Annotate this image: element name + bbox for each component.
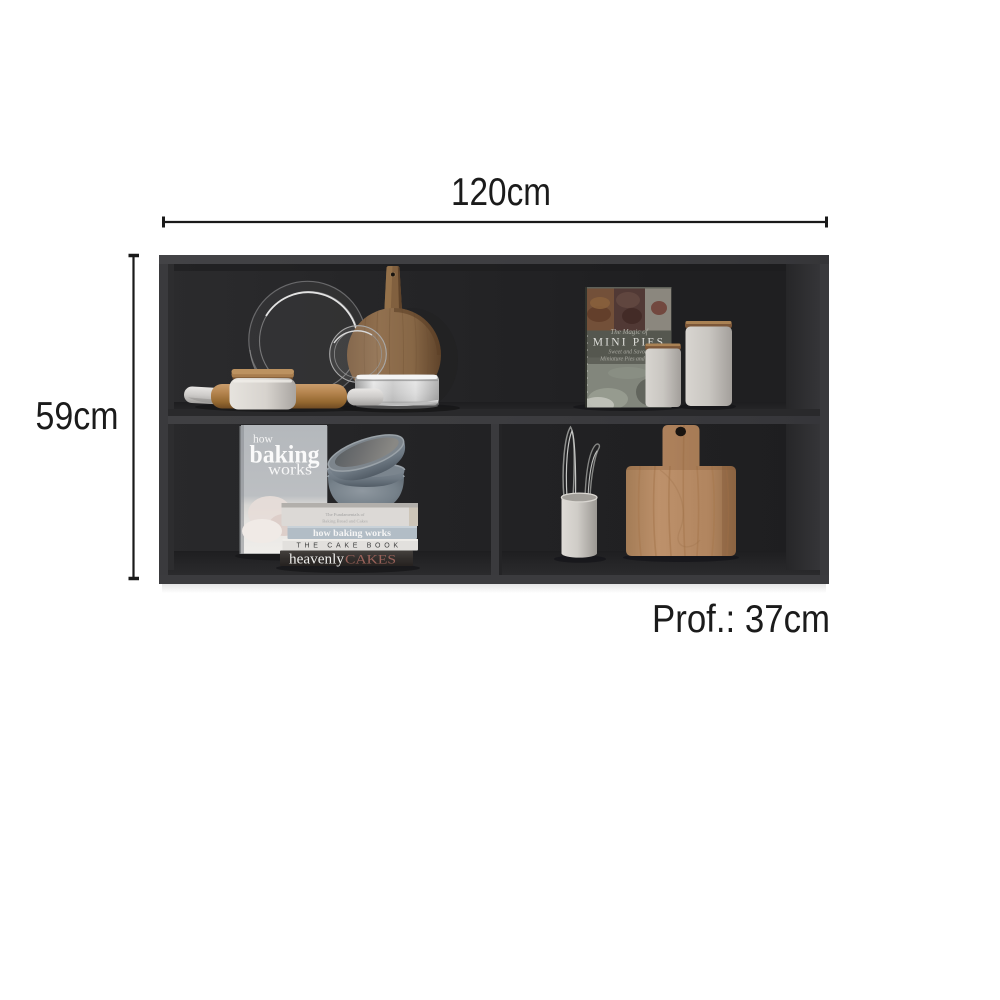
svg-text:THE CAKE BOOK: THE CAKE BOOK — [297, 543, 404, 550]
svg-text:works: works — [268, 462, 312, 479]
svg-text:Baking Bread and Cakes: Baking Bread and Cakes — [322, 519, 368, 524]
svg-text:The Fundamentals of: The Fundamentals of — [325, 512, 365, 517]
svg-text:Prof.: 37cm: Prof.: 37cm — [652, 598, 830, 641]
svg-text:The Magic of: The Magic of — [610, 328, 648, 336]
svg-text:Sweet and Savory: Sweet and Savory — [608, 350, 650, 356]
svg-text:120cm: 120cm — [451, 171, 551, 214]
svg-text:59cm: 59cm — [36, 395, 119, 438]
svg-text:CAKES: CAKES — [345, 552, 396, 567]
svg-text:how baking works: how baking works — [313, 529, 391, 539]
svg-text:heavenly: heavenly — [289, 552, 345, 568]
